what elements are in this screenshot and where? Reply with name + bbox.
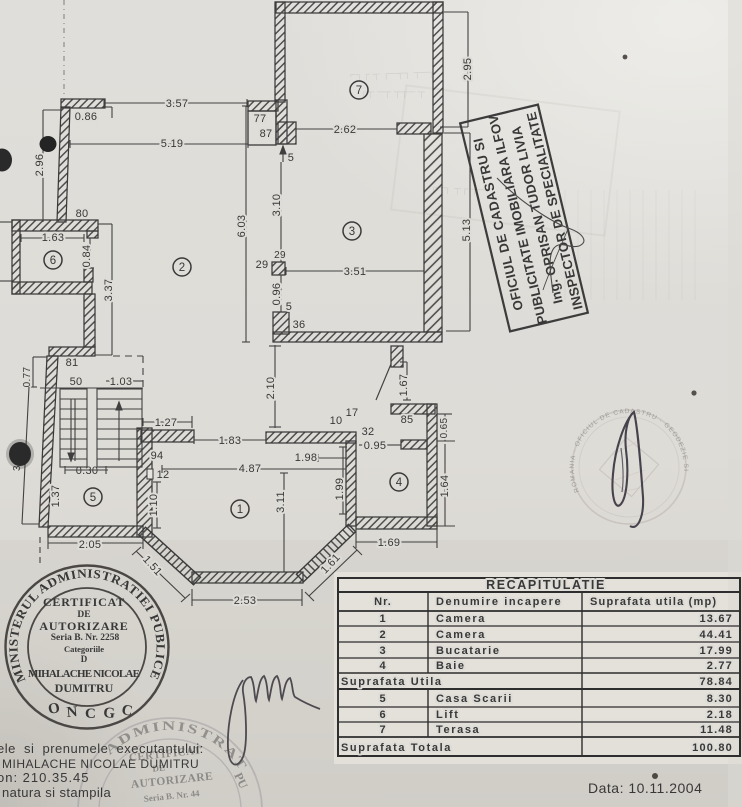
svg-text:78.84: 78.84 <box>699 676 733 688</box>
svg-text:2.95: 2.95 <box>462 58 474 81</box>
svg-text:6: 6 <box>50 255 56 267</box>
svg-text:2.62: 2.62 <box>334 124 357 136</box>
svg-text:1.03: 1.03 <box>110 376 133 388</box>
svg-text:80: 80 <box>76 208 89 220</box>
svg-text:DUMITRU: DUMITRU <box>55 681 114 695</box>
svg-text:29: 29 <box>274 250 286 261</box>
svg-text:Camera: Camera <box>436 613 486 625</box>
svg-text:1.99: 1.99 <box>334 478 346 501</box>
svg-text:7: 7 <box>379 724 386 736</box>
svg-text:1.98: 1.98 <box>295 452 318 464</box>
svg-text:32: 32 <box>362 426 375 438</box>
svg-text:2.10: 2.10 <box>265 377 277 400</box>
svg-text:12: 12 <box>157 469 170 481</box>
svg-text:81: 81 <box>66 357 79 369</box>
svg-text:Data: 10.11.2004: Data: 10.11.2004 <box>588 780 702 796</box>
svg-text:1.27: 1.27 <box>155 417 178 429</box>
svg-text:Suprafata Utila: Suprafata Utila <box>341 676 443 688</box>
svg-text:0.77: 0.77 <box>22 367 33 388</box>
svg-text:0.30: 0.30 <box>76 465 99 477</box>
svg-text:44.41: 44.41 <box>699 629 733 641</box>
svg-text:3.37: 3.37 <box>103 279 115 302</box>
svg-text:2: 2 <box>379 629 386 641</box>
svg-text:2.96: 2.96 <box>34 154 46 177</box>
svg-text:3: 3 <box>349 226 355 238</box>
svg-text:G: G <box>103 705 116 722</box>
svg-text:13.67: 13.67 <box>699 613 733 625</box>
svg-text:ele si prenumele executantului: ele si prenumele executantului: <box>0 741 204 756</box>
svg-text:2: 2 <box>179 262 185 274</box>
svg-text:Suprafata utila (mp): Suprafata utila (mp) <box>590 596 717 608</box>
svg-text:50: 50 <box>70 376 83 388</box>
svg-text:Terasa: Terasa <box>436 724 480 736</box>
svg-text:D: D <box>81 654 88 664</box>
svg-text:85: 85 <box>401 414 414 426</box>
svg-text:Denumire incapere: Denumire incapere <box>436 596 562 608</box>
svg-text:Bucatarie: Bucatarie <box>436 645 501 657</box>
svg-text:6.03: 6.03 <box>236 215 248 238</box>
svg-text:Casa Scarii: Casa Scarii <box>436 693 513 705</box>
svg-text:3.51: 3.51 <box>344 266 367 278</box>
svg-text:4: 4 <box>396 477 403 489</box>
svg-text:Camera: Camera <box>436 629 486 641</box>
svg-text:77: 77 <box>254 113 267 125</box>
svg-text:3: 3 <box>379 645 386 657</box>
svg-text:0.86: 0.86 <box>75 111 98 123</box>
svg-text:29: 29 <box>256 259 269 271</box>
svg-text:RECAPITULATIE: RECAPITULATIE <box>486 578 606 592</box>
svg-text:MIHALACHE NICOLAE: MIHALACHE NICOLAE <box>28 668 140 680</box>
svg-text:0.65: 0.65 <box>439 418 450 439</box>
svg-text:┌┬ ─┬ ┬┬─ ┬: ┌┬ ─┬ ┬┬─ ┬ <box>360 87 426 98</box>
svg-text:4: 4 <box>379 660 386 672</box>
svg-text:natura si stampila: natura si stampila <box>2 785 111 800</box>
svg-text:3.11: 3.11 <box>275 491 287 513</box>
svg-text:94: 94 <box>151 450 164 462</box>
svg-text:0.84: 0.84 <box>81 245 93 268</box>
svg-text:Seria B. Nr. 2258: Seria B. Nr. 2258 <box>51 633 120 643</box>
svg-text:CERTIFICAT: CERTIFICAT <box>43 595 125 609</box>
svg-text:2.53: 2.53 <box>234 595 257 607</box>
svg-text:C: C <box>85 706 96 722</box>
svg-text:5.13: 5.13 <box>461 219 473 242</box>
svg-text:5: 5 <box>288 152 294 164</box>
svg-text:36: 36 <box>293 319 306 331</box>
svg-text:5.19: 5.19 <box>161 138 184 150</box>
svg-text:0.95: 0.95 <box>364 440 387 452</box>
svg-text:5: 5 <box>90 492 96 504</box>
svg-text:Nr.: Nr. <box>374 596 392 608</box>
svg-text:11.48: 11.48 <box>700 724 733 736</box>
svg-text:3.57: 3.57 <box>166 98 189 110</box>
svg-text:8.30: 8.30 <box>707 693 733 705</box>
svg-text:AUTORIZARE: AUTORIZARE <box>39 619 128 633</box>
svg-text:1.69: 1.69 <box>378 537 401 549</box>
svg-text:4.87: 4.87 <box>239 463 262 475</box>
svg-text:2.18: 2.18 <box>707 709 733 721</box>
svg-text:100.80: 100.80 <box>692 742 733 754</box>
svg-text:7: 7 <box>356 85 362 97</box>
svg-text:5: 5 <box>286 301 292 313</box>
svg-text:MIHALACHE NICOLAE DUMITRU: MIHALACHE NICOLAE DUMITRU <box>2 757 199 771</box>
svg-text:17.99: 17.99 <box>699 645 733 657</box>
svg-text:1: 1 <box>379 613 386 625</box>
svg-text:1.63: 1.63 <box>42 232 65 244</box>
svg-text:1.37: 1.37 <box>50 485 62 508</box>
svg-text:Baie: Baie <box>436 660 466 672</box>
svg-text:Categoriile: Categoriile <box>64 644 104 654</box>
svg-text:1.67: 1.67 <box>398 374 410 397</box>
svg-text:1.10: 1.10 <box>148 494 160 517</box>
svg-text:17: 17 <box>346 407 359 419</box>
svg-text:3.10: 3.10 <box>271 194 283 217</box>
svg-text:2.05: 2.05 <box>79 539 102 551</box>
svg-text:6: 6 <box>379 709 386 721</box>
svg-text:10: 10 <box>330 415 343 427</box>
svg-text:on: 210.35.45: on: 210.35.45 <box>0 770 90 785</box>
svg-text:Lift: Lift <box>436 709 460 721</box>
svg-text:Suprafata Totala: Suprafata Totala <box>341 742 452 754</box>
svg-text:2.77: 2.77 <box>707 660 733 672</box>
svg-text:1.83: 1.83 <box>219 435 242 447</box>
svg-text:1.64: 1.64 <box>439 475 451 498</box>
svg-text:5: 5 <box>379 693 386 705</box>
svg-text:87: 87 <box>260 128 273 140</box>
svg-text:1: 1 <box>237 504 243 516</box>
svg-text:N: N <box>66 704 78 721</box>
svg-text:0.96: 0.96 <box>271 283 283 306</box>
